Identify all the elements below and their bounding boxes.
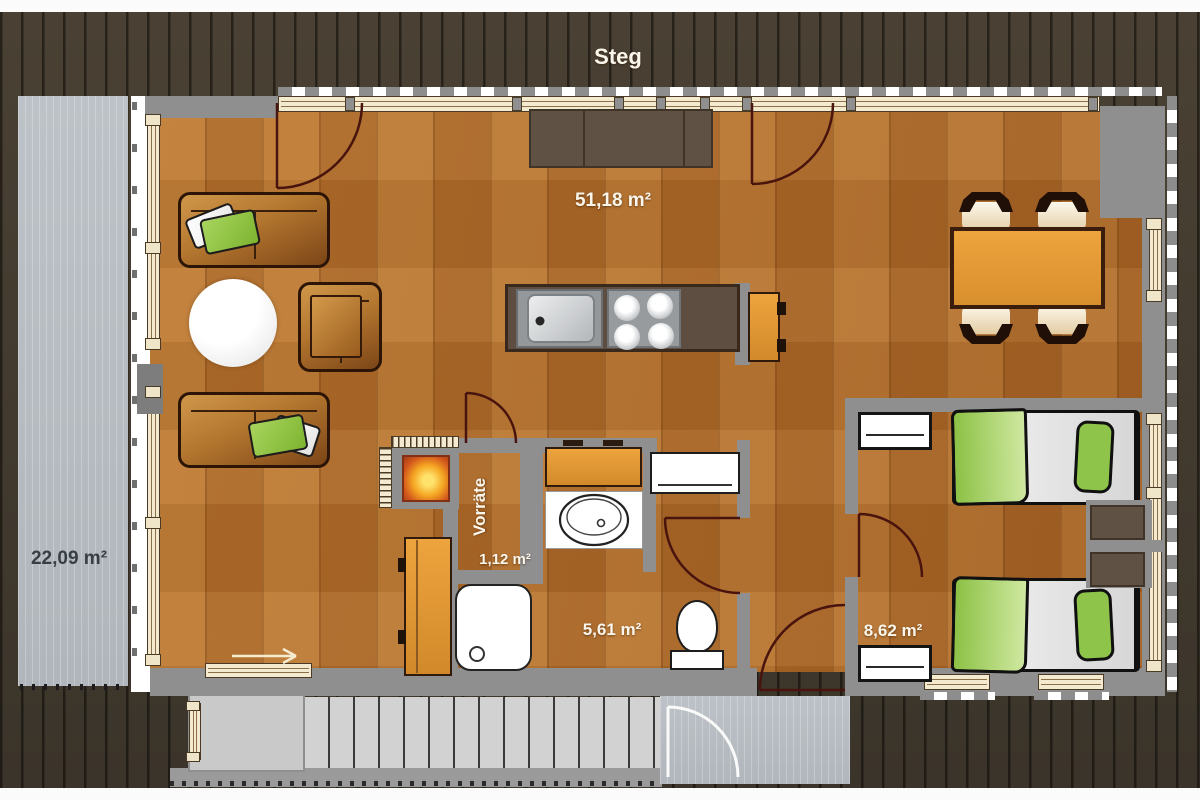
nightstand-shelf [1086, 540, 1162, 552]
kitchen-sink [527, 294, 595, 343]
shelf-line [658, 484, 732, 486]
gangway-planks [305, 697, 662, 768]
sideboard-divider [683, 111, 685, 166]
window-mullion [846, 97, 856, 111]
window [147, 114, 160, 350]
pantry-name-label: Vorräte [470, 448, 510, 566]
bathroom-shelf [650, 452, 740, 494]
deck-trim [1034, 692, 1109, 700]
deck-label: Steg [560, 44, 676, 70]
window-block [145, 517, 161, 529]
toilet-tank [670, 650, 724, 670]
cabinet-handle [777, 302, 786, 315]
nightstand [1090, 505, 1145, 540]
stove-burner-icon [614, 324, 640, 350]
page-strip-top [0, 0, 1200, 12]
wall [737, 593, 750, 673]
shower [455, 584, 532, 671]
deck-trim-right [1167, 96, 1177, 692]
bathroom-area-label: 5,61 m² [560, 620, 664, 640]
nightstand [1090, 552, 1145, 587]
bedroom-area-label: 8,62 m² [843, 621, 943, 641]
cabinet-handle [777, 339, 786, 352]
window-mullion [512, 97, 522, 111]
kitchen-tall-unit [748, 292, 780, 362]
gangway-edge-dots [170, 781, 662, 786]
wall [145, 96, 278, 118]
window-block [145, 386, 161, 398]
floor-plan: Steg 22,09 m² 51,18 m² Vorräte 1,12 m² 5… [0, 0, 1200, 800]
fireplace [402, 455, 450, 502]
window [924, 674, 990, 690]
bed-pillow [1073, 420, 1115, 494]
bed-blanket [951, 576, 1029, 674]
terrace-edge-ticks [20, 684, 126, 690]
terrace [18, 96, 128, 686]
wall [441, 570, 543, 584]
window-block [1146, 413, 1162, 425]
vanity-cabinet [545, 447, 642, 487]
stove-burner-icon [614, 295, 640, 321]
window-mullion [1088, 97, 1098, 111]
stove-burner-icon [647, 293, 673, 319]
window [1038, 674, 1104, 690]
wardrobe [404, 537, 452, 676]
window-block [145, 114, 161, 126]
window-block [145, 242, 161, 254]
wall [845, 398, 858, 514]
terrace-area-label: 22,09 m² [10, 548, 128, 570]
closet [858, 645, 932, 682]
fireplace-vent [379, 447, 392, 508]
stove-burner-icon [648, 323, 674, 349]
sideboard [529, 109, 713, 168]
cabinet-handle [398, 630, 406, 644]
bed-blanket [951, 408, 1029, 506]
window-block [145, 654, 161, 666]
pantry-area-label: 1,12 m² [462, 551, 548, 568]
deck-trim-top [278, 87, 1162, 96]
fireplace-vent [391, 436, 459, 448]
window-block [1146, 218, 1162, 230]
cabinet-handle [398, 558, 406, 572]
sliding-door [205, 663, 312, 678]
washbasin-counter [545, 491, 643, 549]
wall [1100, 106, 1165, 218]
window-block [186, 701, 200, 711]
window-block [1146, 487, 1162, 499]
window-mullion [742, 97, 752, 111]
window-block [1146, 290, 1162, 302]
sideboard-divider [583, 111, 585, 166]
window-mullion [345, 97, 355, 111]
deck-trim [920, 692, 995, 700]
cabinet-handle [563, 440, 583, 446]
closet [858, 412, 932, 450]
armchair-seat [310, 295, 362, 358]
window-block [145, 338, 161, 350]
living-area-label: 51,18 m² [548, 190, 678, 212]
window-block [186, 752, 200, 762]
window-block [1146, 660, 1162, 672]
toilet-bowl [676, 600, 718, 653]
coffee-table [189, 279, 277, 367]
wardrobe-divider [416, 540, 418, 673]
page-strip-bottom [0, 788, 1200, 800]
entry-vestibule [660, 696, 850, 784]
dining-table [950, 227, 1105, 309]
bed-pillow [1073, 588, 1115, 662]
cabinet-handle [603, 440, 623, 446]
